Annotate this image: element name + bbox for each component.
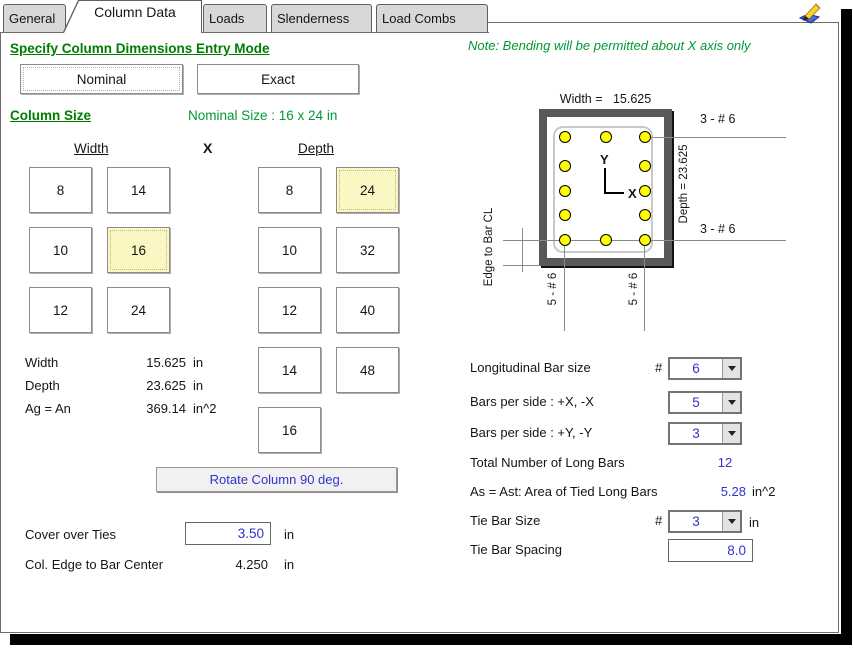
bars-per-side-x-label: Bars per side : +X, -X	[470, 394, 594, 409]
rotate-column-button[interactable]: Rotate Column 90 deg.	[156, 467, 397, 492]
entry-mode-heading: Specify Column Dimensions Entry Mode	[10, 41, 270, 56]
tie-bar-spacing-input[interactable]	[668, 539, 753, 562]
axis-x-line	[604, 192, 624, 194]
chevron-down-icon[interactable]	[722, 359, 740, 378]
window-border-top-right	[488, 22, 839, 23]
as-area-value: 5.28	[700, 484, 746, 499]
right-bars-extension-line	[644, 240, 645, 331]
edit-pencil-icon[interactable]	[798, 2, 824, 24]
long-bar-size-dropdown[interactable]: 6	[668, 357, 742, 380]
tab-loads[interactable]: Loads	[203, 4, 267, 32]
tie-bar-size-label: Tie Bar Size	[470, 513, 540, 528]
depth-size-button-14[interactable]: 14	[258, 347, 321, 393]
as-area-unit: in^2	[752, 484, 775, 499]
rebar-dot	[639, 234, 651, 246]
top-bars-dimension-line	[651, 137, 786, 138]
tie-bar-size-dropdown[interactable]: 3	[668, 510, 742, 533]
depth-size-button-48[interactable]: 48	[336, 347, 399, 393]
left-bars-count-label: 5 - # 6	[547, 268, 559, 310]
long-bar-size-prefix: #	[655, 360, 662, 375]
axis-x-label: X	[628, 186, 637, 201]
tab-general[interactable]: General	[3, 4, 66, 32]
nominal-mode-button[interactable]: Nominal	[20, 64, 183, 94]
window-shadow-bottom	[10, 634, 852, 645]
depth-readout-unit: in	[193, 378, 203, 393]
exact-mode-button[interactable]: Exact	[197, 64, 359, 94]
depth-readout-label: Depth	[25, 378, 60, 393]
depth-size-button-10[interactable]: 10	[258, 227, 321, 273]
window-shadow-right	[841, 9, 852, 645]
long-bar-size-label: Longitudinal Bar size	[470, 360, 591, 375]
column-size-heading: Column Size	[10, 108, 91, 123]
depth-size-button-32[interactable]: 32	[336, 227, 399, 273]
top-bars-count-label: 3 - # 6	[700, 112, 735, 126]
width-size-button-12[interactable]: 12	[29, 287, 92, 333]
rebar-dot	[559, 209, 571, 221]
axis-y-label: Y	[600, 152, 609, 167]
width-size-button-10[interactable]: 10	[29, 227, 92, 273]
rebar-dot	[639, 209, 651, 221]
rebar-dot	[559, 160, 571, 172]
window-border-bottom	[0, 632, 839, 633]
cover-over-ties-input[interactable]	[185, 522, 271, 545]
width-readout-unit: in	[193, 355, 203, 370]
edge-to-bar-center-label: Col. Edge to Bar Center	[25, 557, 163, 572]
edge-to-bar-center-value: 4.250	[200, 557, 268, 572]
width-size-button-24[interactable]: 24	[107, 287, 170, 333]
width-size-button-14[interactable]: 14	[107, 167, 170, 213]
tab-column-data-label[interactable]: Column Data	[70, 4, 200, 20]
rebar-dot	[559, 185, 571, 197]
chevron-down-icon[interactable]	[722, 393, 740, 412]
edge-dimension-tick	[522, 228, 523, 272]
depth-size-button-12[interactable]: 12	[258, 287, 321, 333]
rebar-dot	[639, 131, 651, 143]
depth-size-button-16[interactable]: 16	[258, 407, 321, 453]
edge-to-bar-center-unit: in	[284, 557, 294, 572]
tab-load-combs[interactable]: Load Combs	[376, 4, 488, 32]
app-window: General Column Data Loads Slenderness Lo…	[0, 0, 853, 650]
width-column-header: Width	[74, 141, 109, 156]
as-area-label: As = Ast: Area of Tied Long Bars	[470, 484, 658, 499]
total-long-bars-value: 12	[710, 455, 740, 470]
tie-bar-spacing-label: Tie Bar Spacing	[470, 542, 562, 557]
nominal-size-text: Nominal Size : 16 x 24 in	[188, 108, 337, 123]
diagram-depth-dimension: Depth = 23.625	[678, 140, 690, 228]
tie-bar-size-prefix: #	[655, 513, 662, 528]
depth-size-button-8[interactable]: 8	[258, 167, 321, 213]
edge-to-bar-cl-label: Edge to Bar CL	[483, 207, 495, 287]
width-size-button-16-selected[interactable]: 16	[107, 227, 170, 273]
right-bars-count-label: 5 - # 6	[628, 268, 640, 310]
rebar-dot	[639, 160, 651, 172]
window-border-left	[0, 32, 1, 633]
total-long-bars-label: Total Number of Long Bars	[470, 455, 625, 470]
bending-note: Note: Bending will be permitted about X …	[468, 38, 751, 53]
depth-size-button-24-selected[interactable]: 24	[336, 167, 399, 213]
bars-per-side-x-dropdown[interactable]: 5	[668, 391, 742, 414]
ag-readout-value: 369.14	[118, 401, 186, 416]
rebar-dot	[559, 131, 571, 143]
rebar-dot	[639, 185, 651, 197]
chevron-down-icon[interactable]	[722, 512, 740, 531]
depth-column-header: Depth	[298, 141, 334, 156]
ag-readout-unit: in^2	[193, 401, 216, 416]
cover-over-ties-label: Cover over Ties	[25, 527, 116, 542]
width-readout-label: Width	[25, 355, 58, 370]
window-border-right	[838, 22, 839, 633]
depth-size-button-40[interactable]: 40	[336, 287, 399, 333]
diagram-width-dimension: Width = 15.625	[539, 92, 672, 106]
rebar-dot	[600, 234, 612, 246]
tie-bar-size-unit: in	[749, 515, 759, 530]
size-separator-x: X	[203, 140, 212, 156]
bottom-bars-count-label: 3 - # 6	[700, 222, 735, 236]
chevron-down-icon[interactable]	[722, 424, 740, 443]
bars-per-side-y-label: Bars per side : +Y, -Y	[470, 425, 592, 440]
width-readout-value: 15.625	[118, 355, 186, 370]
depth-readout-value: 23.625	[118, 378, 186, 393]
cover-over-ties-unit: in	[284, 527, 294, 542]
left-bars-extension-line	[564, 240, 565, 331]
ag-readout-label: Ag = An	[25, 401, 71, 416]
rebar-dot	[559, 234, 571, 246]
axis-y-line	[604, 168, 606, 194]
rebar-dot	[600, 131, 612, 143]
tab-slenderness[interactable]: Slenderness	[271, 4, 372, 32]
width-size-button-8[interactable]: 8	[29, 167, 92, 213]
bars-per-side-y-dropdown[interactable]: 3	[668, 422, 742, 445]
